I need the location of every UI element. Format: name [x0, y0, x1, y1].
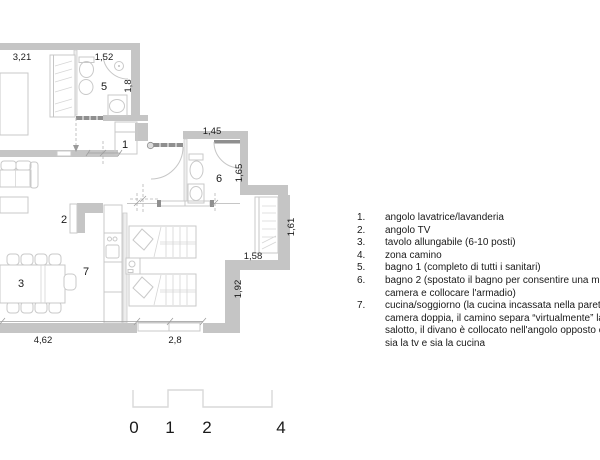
wardrobe-left: [50, 55, 75, 117]
coffee-table: [0, 197, 28, 213]
room-label-cucina: 7: [83, 266, 89, 278]
legend-text: camera doppia, il camino separa “virtual…: [385, 313, 600, 326]
bath2-sink: [188, 184, 204, 203]
bedroom-sliding-doors: [127, 200, 240, 207]
legend-text: zona camino: [385, 250, 442, 263]
double-bed: [0, 73, 28, 135]
legend-text: angolo lavatrice/lavanderia: [385, 212, 504, 225]
legend-item-6: 6.bagno 2 (spostato il bagno per consent…: [357, 275, 600, 288]
legend-text: bagno 1 (completo di tutti i sanitari): [385, 262, 541, 275]
balcony-door: [137, 322, 203, 331]
legend-num: 2.: [357, 225, 385, 238]
legend-item-5: 5.bagno 1 (completo di tutti i sanitari): [357, 262, 600, 275]
dim-1-65: 1,65: [234, 164, 245, 183]
bath1-sliding-door: [76, 116, 103, 120]
bath2-toilet: [189, 154, 203, 179]
legend-item-7: 7.cucina/soggiorno (la cucina incassata …: [357, 300, 600, 313]
legend-text: sia la tv e sia la cucina: [385, 338, 485, 351]
legend-num: 6.: [357, 275, 385, 288]
dim-1-58: 1,58: [244, 251, 263, 262]
dim-1-61: 1,61: [286, 218, 297, 237]
legend-num: 1.: [357, 212, 385, 225]
dim-1-45: 1,45: [203, 126, 222, 137]
wall-opening: [57, 151, 71, 156]
legend-item-7-cont: camera doppia, il camino separa “virtual…: [357, 313, 600, 326]
sofa: [0, 161, 38, 188]
room-label-bagno1: 5: [101, 81, 107, 93]
bed-1: [129, 226, 196, 258]
scale-bar-line: [133, 390, 272, 407]
room-label-tavolo: 3: [18, 278, 24, 290]
legend-num: 4.: [357, 250, 385, 263]
legend-num: [357, 338, 385, 351]
legend-text: cucina/soggiorno (la cucina incassata ne…: [385, 300, 600, 313]
floor-plan-page: 5 1 6 2 7 3 3,21 1,52 1,8 1,45 1,65 1,61…: [0, 0, 600, 460]
chair: [64, 274, 76, 290]
legend-item-6-cont: camera e collocare l'armadio): [357, 288, 600, 301]
legend-item-7-cont: sia la tv e sia la cucina: [357, 338, 600, 351]
bath1-toilet: [79, 57, 94, 78]
scale-label-4: 4: [276, 418, 285, 437]
scale-label-2: 2: [202, 418, 211, 437]
legend-item-4: 4.zona camino: [357, 250, 600, 263]
legend-num: [357, 313, 385, 326]
legend-num: 5.: [357, 262, 385, 275]
dim-1-92: 1,92: [233, 280, 244, 299]
legend: 1.angolo lavatrice/lavanderia 2.angolo T…: [357, 212, 600, 351]
dim-1-52: 1,52: [95, 52, 114, 63]
dim-3-21: 3,21: [13, 52, 32, 63]
legend-item-2: 2.angolo TV: [357, 225, 600, 238]
legend-num: [357, 325, 385, 338]
room-label-bagno2: 6: [216, 173, 222, 185]
legend-text: bagno 2 (spostato il bagno per consentir…: [385, 275, 600, 288]
legend-item-7-cont: salotto, il divano è collocato nell'ango…: [357, 325, 600, 338]
legend-text: camera e collocare l'armadio): [385, 288, 516, 301]
dim-1-8: 1,8: [123, 79, 134, 92]
dim-2-8: 2,8: [168, 335, 181, 346]
legend-num: 3.: [357, 237, 385, 250]
legend-text: angolo TV: [385, 225, 430, 238]
legend-num: 7.: [357, 300, 385, 313]
room-label-tv: 2: [61, 214, 67, 226]
bath1-shower-head: [115, 62, 124, 71]
bath1-sink: [108, 95, 127, 116]
fireplace: [126, 258, 140, 274]
legend-item-1: 1.angolo lavatrice/lavanderia: [357, 212, 600, 225]
bath1-bidet: [79, 80, 93, 95]
entrance-door: [147, 142, 183, 179]
room-label-lavatrice: 1: [122, 139, 128, 151]
section-arrow: [73, 118, 79, 152]
legend-num: [357, 288, 385, 301]
legend-text: tavolo allungabile (6-10 posti): [385, 237, 516, 250]
kitchen-units: [104, 205, 122, 323]
scale-bar: 0 1 2 4: [129, 390, 285, 437]
tv: [70, 204, 77, 233]
door-hinge: [147, 142, 153, 148]
scale-label-0: 0: [129, 418, 138, 437]
dim-4-62: 4,62: [34, 335, 53, 346]
legend-text: salotto, il divano è collocato nell'ango…: [385, 325, 600, 338]
bed-2: [129, 274, 196, 306]
dining-table: [0, 254, 76, 313]
scale-label-1: 1: [165, 418, 174, 437]
wardrobe-right: [255, 197, 278, 253]
legend-item-3: 3.tavolo allungabile (6-10 posti): [357, 237, 600, 250]
